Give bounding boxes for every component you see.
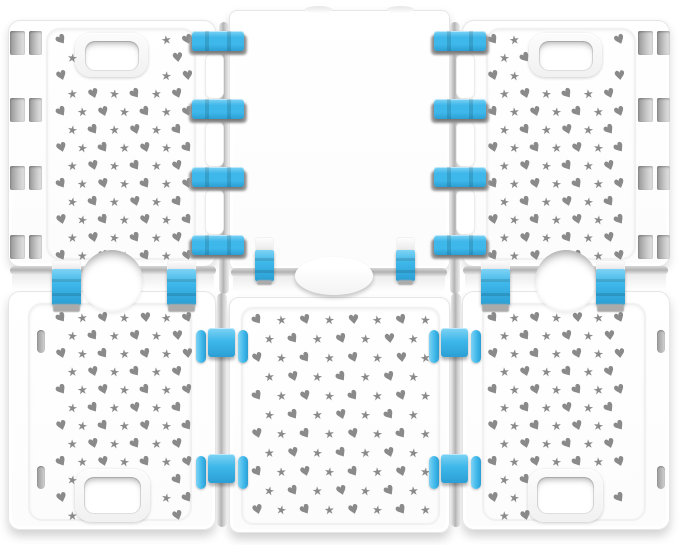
star-perforation: ★ (150, 159, 162, 172)
hinge-clip-pill (238, 330, 248, 363)
star-perforation: ★ (66, 51, 78, 64)
star-perforation: ★ (66, 232, 77, 244)
clip-rib (227, 31, 231, 51)
star-perforation: ★ (324, 504, 336, 517)
star-perforation: ★ (359, 332, 371, 345)
star-perforation: ★ (118, 347, 130, 360)
star-perforation: ★ (508, 105, 520, 118)
hinge-clip-horizontal (192, 99, 244, 119)
handle-cutout-hole (84, 477, 141, 514)
heart-perforation: ♥ (613, 69, 626, 83)
star-perforation: ★ (509, 250, 520, 262)
hinge-clip-foot (168, 304, 195, 312)
edge-slot-hole (638, 235, 653, 259)
star-perforation: ★ (497, 195, 510, 209)
star-perforation: ★ (118, 383, 130, 396)
star-perforation: ★ (420, 314, 432, 327)
star-perforation: ★ (508, 383, 520, 396)
hinge-clip-horizontal (434, 99, 486, 119)
hinge-clip-square (208, 454, 235, 483)
star-perforation: ★ (550, 177, 563, 191)
star-perforation: ★ (509, 456, 521, 469)
star-perforation: ★ (498, 438, 510, 451)
heart-perforation: ♥ (603, 329, 616, 343)
star-perforation: ★ (592, 455, 604, 468)
star-perforation: ★ (498, 401, 511, 415)
star-perforation: ★ (592, 419, 604, 432)
edge-slot-hole (29, 98, 42, 122)
heart-perforation: ♥ (395, 351, 408, 365)
star-perforation: ★ (150, 365, 162, 378)
heart-perforation: ♥ (181, 347, 194, 361)
star-perforation: ★ (108, 87, 120, 100)
heart-perforation: ♥ (181, 69, 194, 83)
star-perforation: ★ (66, 438, 78, 451)
edge-slot-hole (29, 166, 42, 190)
handle-cutout-hole (85, 41, 139, 71)
star-perforation: ★ (540, 329, 552, 342)
star-perforation: ★ (592, 383, 604, 396)
star-perforation: ★ (160, 311, 173, 325)
hinge-clip-foot (257, 280, 272, 285)
star-perforation: ★ (150, 87, 162, 100)
heart-perforation: ♥ (347, 313, 360, 327)
hinge-clip-vertical (167, 269, 196, 305)
star-perforation: ★ (76, 105, 88, 118)
clip-rib (205, 167, 209, 187)
star-perforation: ★ (407, 484, 419, 497)
center-hump (295, 257, 373, 295)
star-perforation: ★ (160, 33, 173, 47)
star-perforation: ★ (508, 141, 521, 155)
hinge-clip-vertical (255, 250, 274, 281)
star-perforation: ★ (66, 160, 78, 173)
star-perforation: ★ (311, 408, 323, 421)
star-perforation: ★ (118, 419, 130, 432)
star-perforation: ★ (118, 141, 130, 154)
star-perforation: ★ (498, 87, 510, 100)
hinge-clip-foot (398, 280, 413, 285)
star-perforation: ★ (498, 232, 509, 244)
star-perforation: ★ (407, 446, 419, 459)
clip-rib (447, 167, 451, 187)
star-perforation: ★ (160, 177, 172, 190)
hinge-clip-vertical (596, 269, 625, 305)
seam-tab (456, 53, 475, 99)
star-perforation: ★ (592, 213, 605, 227)
hinge-clip-square (441, 328, 468, 357)
star-perforation: ★ (582, 195, 595, 209)
star-perforation: ★ (323, 389, 335, 402)
circular-hole-left (81, 250, 143, 312)
star-perforation: ★ (77, 178, 89, 191)
clip-rib (167, 279, 196, 282)
edge-slot-hole (10, 31, 25, 55)
lip-notch (305, 6, 332, 13)
star-perforation: ★ (592, 105, 604, 118)
star-perforation: ★ (160, 419, 172, 432)
star-perforation: ★ (359, 370, 371, 383)
seam-tab (205, 53, 224, 99)
star-perforation: ★ (582, 232, 594, 245)
star-perforation: ★ (263, 408, 276, 422)
clip-rib (596, 293, 625, 296)
lip-notch (387, 6, 414, 13)
star-perforation: ★ (371, 465, 383, 478)
star-perforation: ★ (498, 329, 510, 342)
clip-rib (396, 270, 415, 273)
star-perforation: ★ (592, 177, 604, 190)
clip-rib (481, 293, 510, 296)
star-perforation: ★ (508, 347, 520, 360)
star-perforation: ★ (582, 87, 594, 100)
edge-slot-pill (37, 330, 45, 353)
star-perforation: ★ (540, 196, 552, 209)
star-perforation: ★ (150, 329, 162, 342)
hinge-clip-foot (53, 304, 80, 312)
star-perforation: ★ (407, 408, 419, 421)
star-perforation: ★ (160, 383, 172, 396)
clip-rib (396, 258, 415, 261)
clip-rib (227, 167, 231, 187)
star-perforation: ★ (65, 195, 78, 209)
star-perforation: ★ (550, 105, 562, 118)
star-perforation: ★ (66, 329, 78, 342)
star-perforation: ★ (118, 455, 131, 469)
hinge-clip-foot (597, 304, 624, 312)
edge-slot-hole (657, 235, 670, 259)
star-perforation: ★ (582, 159, 594, 172)
heart-perforation: ♥ (613, 347, 626, 361)
star-perforation: ★ (498, 51, 510, 64)
hinge-clip-pill (471, 456, 481, 489)
star-perforation: ★ (419, 389, 431, 402)
clip-rib (52, 279, 81, 282)
star-perforation: ★ (550, 347, 562, 360)
star-perforation: ★ (582, 401, 594, 414)
star-perforation: ★ (582, 437, 594, 450)
star-perforation: ★ (312, 485, 324, 498)
edge-slot-hole (638, 166, 653, 190)
heart-perforation: ♥ (171, 51, 184, 65)
star-perforation: ★ (160, 141, 172, 154)
star-perforation: ★ (108, 159, 121, 173)
clip-rib (447, 99, 451, 119)
star-perforation: ★ (160, 105, 172, 118)
star-perforation: ★ (118, 311, 130, 324)
star-perforation: ★ (150, 401, 162, 414)
star-perforation: ★ (582, 123, 594, 136)
star-perforation: ★ (540, 401, 552, 414)
clip-rib (469, 235, 473, 255)
star-perforation: ★ (509, 178, 521, 191)
star-perforation: ★ (65, 473, 78, 487)
star-perforation: ★ (108, 365, 120, 378)
edge-slot-pill (657, 330, 665, 353)
star-perforation: ★ (150, 232, 162, 245)
star-perforation: ★ (66, 510, 77, 522)
star-perforation: ★ (263, 332, 275, 345)
star-perforation: ★ (160, 455, 172, 468)
edge-slot-hole (657, 98, 670, 122)
seam-tab (205, 189, 224, 235)
clip-rib (255, 270, 274, 273)
clip-rib (205, 31, 209, 51)
star-perforation: ★ (419, 427, 431, 440)
star-perforation: ★ (66, 401, 79, 415)
hinge-clip-vertical (52, 269, 81, 305)
star-perforation: ★ (76, 311, 88, 324)
clip-rib (469, 99, 473, 119)
star-perforation: ★ (275, 389, 287, 402)
star-perforation: ★ (323, 351, 335, 364)
star-perforation: ★ (540, 87, 552, 100)
handle-cutout-hole (539, 41, 593, 71)
star-perforation: ★ (550, 455, 563, 469)
clip-rib (481, 279, 510, 282)
star-perforation: ★ (508, 419, 521, 433)
star-perforation: ★ (359, 446, 371, 459)
star-perforation: ★ (108, 196, 120, 209)
edge-slot-pill (657, 466, 665, 489)
star-perforation: ★ (359, 484, 372, 498)
star-perforation: ★ (497, 473, 510, 487)
edge-slot-hole (10, 98, 25, 122)
star-perforation: ★ (264, 447, 276, 460)
star-perforation: ★ (407, 370, 419, 383)
edge-slot-hole (638, 31, 653, 55)
clip-rib (469, 167, 473, 187)
star-perforation: ★ (311, 446, 324, 460)
star-perforation: ★ (540, 159, 553, 173)
hinge-clip-pill (471, 330, 481, 363)
circular-hole-right (535, 250, 597, 312)
edge-slot-hole (29, 235, 42, 259)
star-perforation: ★ (275, 313, 287, 326)
hinge-clip-pill (429, 456, 439, 489)
panel-top-center (229, 10, 450, 270)
star-perforation: ★ (76, 419, 89, 433)
star-perforation: ★ (108, 123, 120, 136)
star-perforation: ★ (592, 347, 604, 360)
star-perforation: ★ (359, 408, 371, 421)
edge-slot-pill (37, 466, 45, 489)
clip-rib (227, 99, 231, 119)
clip-rib (227, 235, 231, 255)
star-perforation: ★ (539, 231, 552, 245)
edge-slot-hole (10, 166, 25, 190)
clip-rib (205, 99, 209, 119)
star-perforation: ★ (551, 214, 563, 227)
star-perforation: ★ (371, 389, 383, 402)
heart-perforation: ♥ (571, 311, 584, 325)
edge-slot-hole (638, 98, 653, 122)
star-perforation: ★ (550, 141, 562, 154)
heart-perforation: ♥ (171, 329, 184, 343)
star-perforation: ★ (371, 503, 384, 517)
star-perforation: ★ (498, 510, 509, 522)
star-perforation: ★ (498, 160, 510, 173)
star-perforation: ★ (66, 87, 78, 100)
folding-board-product-image: ♥★♥★♥♥★♥★♥★♥★♥♥★♥★♥★♥★♥★♥★♥♥★♥★♥★♥★♥★♥★♥… (0, 0, 679, 545)
hinge-clip-pill (238, 456, 248, 489)
star-perforation: ★ (550, 383, 562, 396)
clip-rib (469, 31, 473, 51)
star-perforation: ★ (66, 365, 78, 378)
clip-rib (52, 293, 81, 296)
star-perforation: ★ (76, 141, 89, 155)
star-perforation: ★ (118, 177, 131, 191)
star-perforation: ★ (498, 365, 510, 378)
star-perforation: ★ (540, 365, 552, 378)
heart-perforation: ♥ (383, 332, 396, 346)
star-perforation: ★ (311, 332, 323, 345)
seam-tab (456, 189, 475, 235)
hinge-clip-horizontal (192, 31, 244, 51)
star-perforation: ★ (550, 419, 562, 432)
heart-perforation: ♥ (139, 311, 152, 325)
star-perforation: ★ (508, 69, 520, 82)
star-perforation: ★ (508, 311, 520, 324)
star-perforation: ★ (107, 231, 120, 245)
hinge-clip-vertical (396, 250, 415, 281)
hinge-clip-horizontal (434, 167, 486, 187)
edge-slot-hole (29, 31, 42, 55)
clip-rib (255, 258, 274, 261)
clip-rib (447, 235, 451, 255)
star-perforation: ★ (275, 351, 287, 364)
star-perforation: ★ (540, 123, 552, 136)
star-perforation: ★ (371, 351, 383, 364)
star-perforation: ★ (150, 437, 162, 450)
hinge-clip-cap (396, 237, 415, 251)
star-perforation: ★ (160, 69, 172, 82)
seam-tab (456, 121, 475, 167)
hinge-clip-pill (196, 456, 206, 489)
star-perforation: ★ (160, 347, 172, 360)
star-perforation: ★ (592, 311, 605, 325)
star-perforation: ★ (66, 123, 79, 137)
star-perforation: ★ (508, 33, 520, 46)
star-perforation: ★ (108, 329, 120, 342)
star-perforation: ★ (582, 329, 594, 342)
star-perforation: ★ (160, 213, 173, 227)
star-perforation: ★ (323, 427, 335, 440)
star-perforation: ★ (150, 195, 163, 209)
star-perforation: ★ (323, 313, 335, 326)
star-perforation: ★ (276, 466, 288, 479)
edge-slot-hole (657, 31, 670, 55)
clip-rib (447, 31, 451, 51)
hinge-clip-foot (482, 304, 509, 312)
star-perforation: ★ (407, 332, 420, 346)
star-perforation: ★ (323, 465, 336, 479)
clip-rib (205, 235, 209, 255)
star-perforation: ★ (119, 214, 131, 227)
hinge-clip-square (441, 454, 468, 483)
star-perforation: ★ (371, 427, 383, 440)
star-perforation: ★ (582, 365, 594, 378)
star-perforation: ★ (498, 123, 511, 137)
hinge-clip-pill (196, 330, 206, 363)
star-perforation: ★ (419, 503, 431, 516)
star-perforation: ★ (540, 437, 553, 451)
star-perforation: ★ (275, 427, 288, 441)
star-perforation: ★ (592, 141, 604, 154)
edge-slot-hole (657, 166, 670, 190)
hinge-clip-horizontal (192, 167, 244, 187)
star-perforation: ★ (160, 491, 173, 505)
seam-tab (205, 121, 224, 167)
clip-rib (167, 293, 196, 296)
star-perforation: ★ (108, 437, 121, 451)
edge-slot-hole (10, 235, 25, 259)
hinge-clip-pill (429, 330, 439, 363)
hinge-clip-horizontal (434, 31, 486, 51)
star-perforation: ★ (108, 401, 120, 414)
handle-cutout-hole (537, 477, 594, 514)
star-perforation: ★ (118, 105, 130, 118)
star-perforation: ★ (263, 370, 275, 383)
hinge-clip-square (208, 328, 235, 357)
clip-rib (596, 279, 625, 282)
star-perforation: ★ (550, 311, 562, 324)
hinge-clip-cap (255, 237, 274, 251)
hinge-clip-vertical (481, 269, 510, 305)
star-perforation: ★ (150, 123, 162, 136)
star-perforation: ★ (77, 456, 89, 469)
star-perforation: ★ (76, 383, 88, 396)
star-perforation: ★ (371, 313, 384, 327)
star-perforation: ★ (311, 370, 323, 383)
hinge-clip-horizontal (434, 235, 486, 255)
star-perforation: ★ (76, 347, 88, 360)
hinge-clip-horizontal (192, 235, 244, 255)
